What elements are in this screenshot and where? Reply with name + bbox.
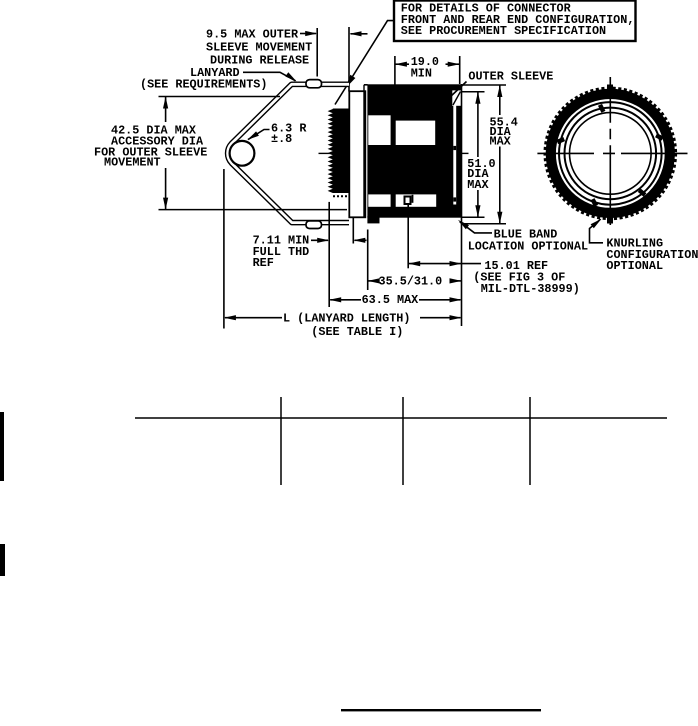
svg-text:MAX: MAX: [467, 178, 489, 192]
svg-text:35.5/31.0: 35.5/31.0: [379, 275, 443, 289]
svg-text:MOVEMENT: MOVEMENT: [104, 156, 161, 170]
svg-text:(SEE REQUIREMENTS): (SEE REQUIREMENTS): [140, 77, 267, 91]
svg-text:REF: REF: [253, 256, 274, 270]
svg-text:OPTIONAL: OPTIONAL: [606, 259, 663, 273]
svg-text:MAX: MAX: [490, 134, 512, 148]
svg-text:SEE PROCUREMENT SPECIFICATION: SEE PROCUREMENT SPECIFICATION: [401, 24, 606, 38]
svg-text:9.5 MAX OUTER: 9.5 MAX OUTER: [206, 28, 299, 42]
svg-text:±.8: ±.8: [271, 132, 292, 146]
svg-text:MIL-DTL-38999): MIL-DTL-38999): [481, 282, 580, 296]
svg-text:MIN: MIN: [411, 66, 432, 80]
svg-text:L (LANYARD LENGTH): L (LANYARD LENGTH): [283, 311, 410, 325]
svg-text:OUTER SLEEVE: OUTER SLEEVE: [468, 69, 553, 83]
svg-text:63.5 MAX: 63.5 MAX: [362, 293, 420, 307]
svg-text:(SEE TABLE I): (SEE TABLE I): [311, 325, 403, 339]
svg-text:LOCATION OPTIONAL: LOCATION OPTIONAL: [468, 240, 588, 254]
